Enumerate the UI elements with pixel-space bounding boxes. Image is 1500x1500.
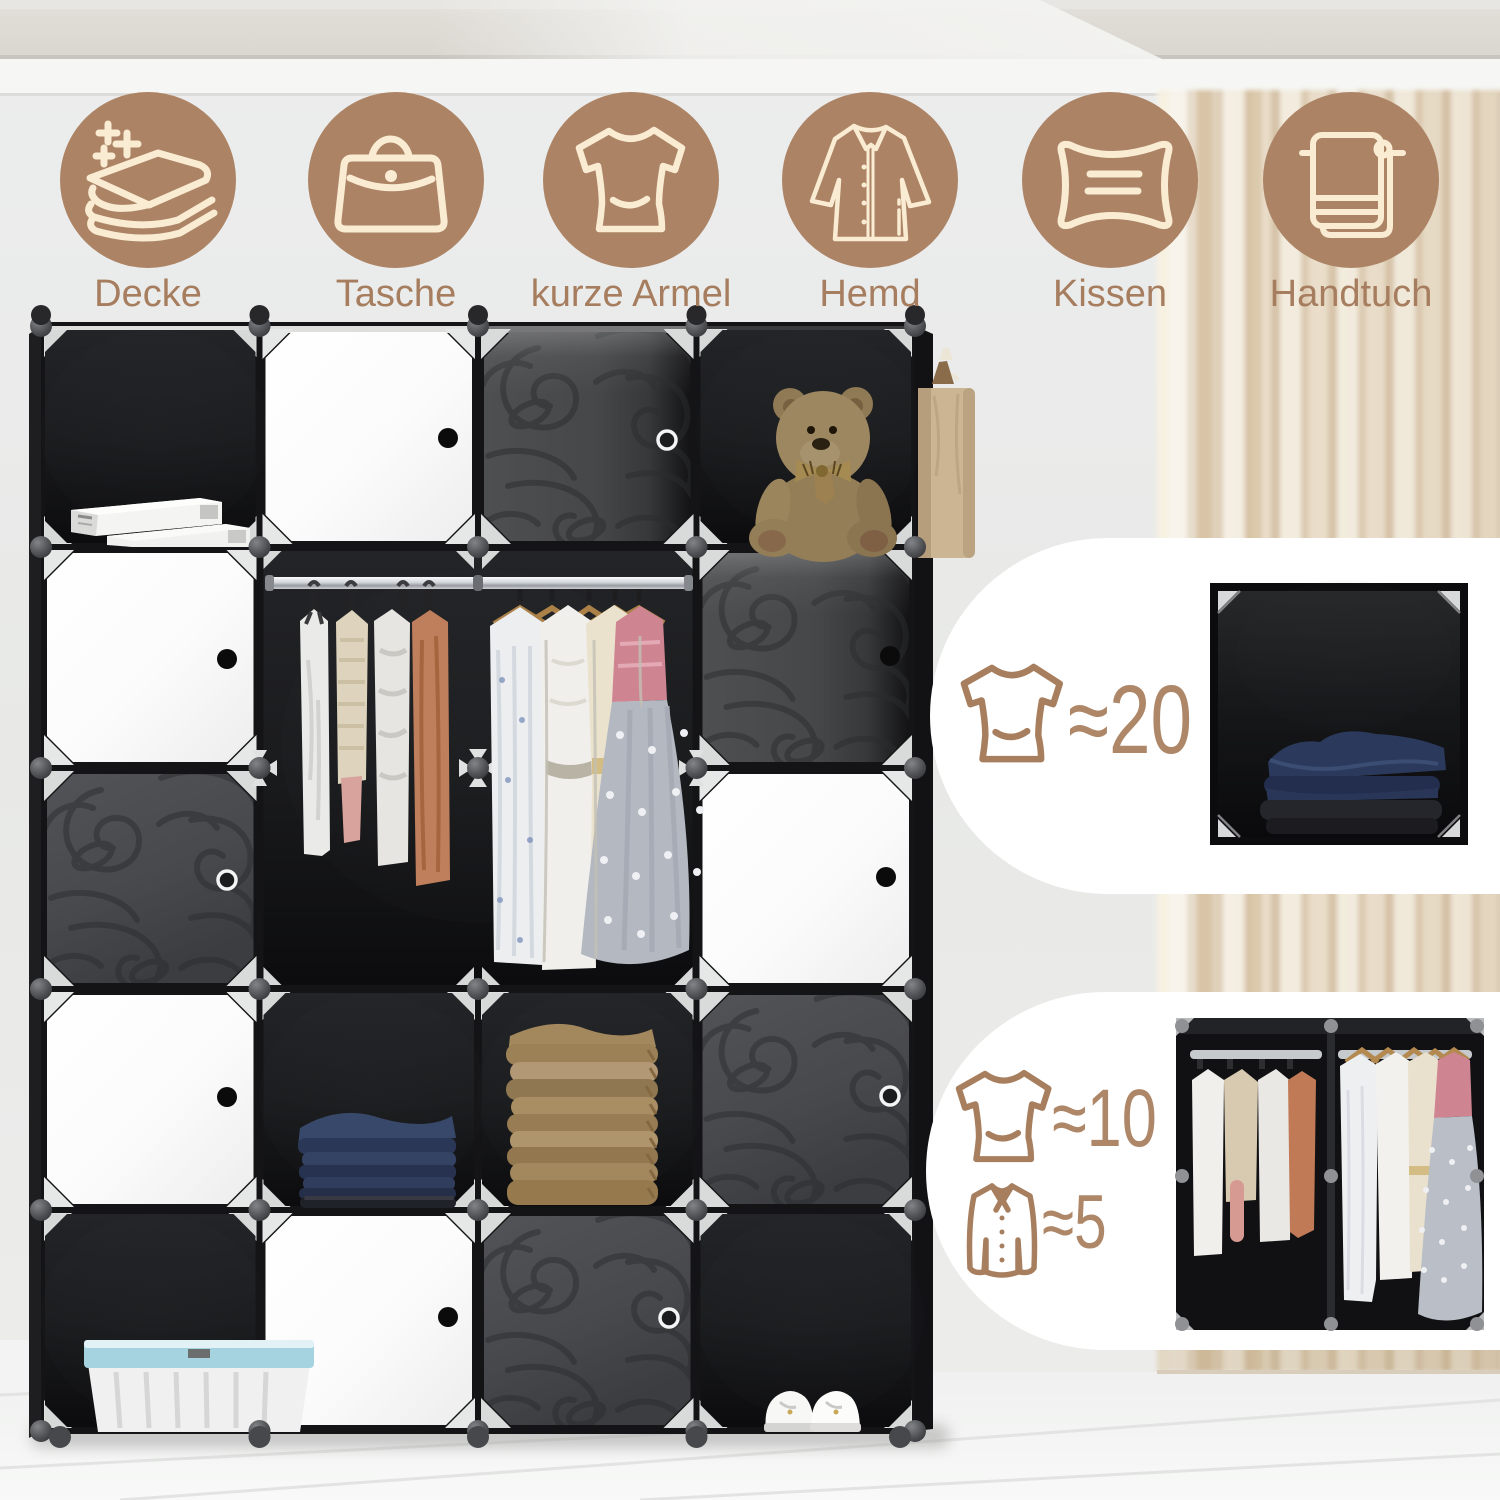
svg-text:≈5: ≈5: [1042, 1181, 1107, 1265]
svg-text:Tasche: Tasche: [336, 273, 456, 315]
svg-text:≈10: ≈10: [1052, 1072, 1157, 1164]
svg-text:kurze Armel: kurze Armel: [531, 273, 732, 315]
svg-text:≈20: ≈20: [1068, 667, 1192, 775]
svg-text:Kissen: Kissen: [1053, 273, 1167, 315]
svg-text:Hemd: Hemd: [819, 273, 920, 315]
svg-text:Handtuch: Handtuch: [1270, 273, 1433, 315]
svg-text:Decke: Decke: [94, 273, 202, 315]
